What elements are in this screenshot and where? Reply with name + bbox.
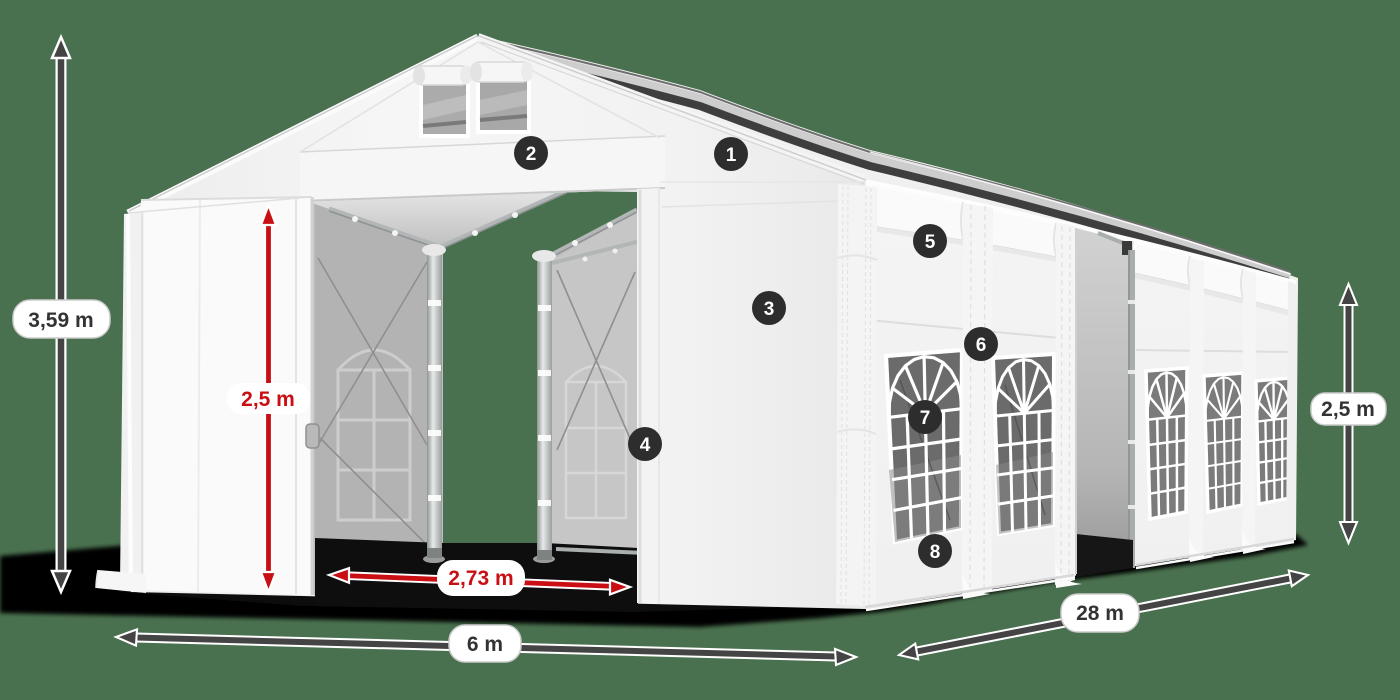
- svg-text:5: 5: [925, 232, 936, 253]
- svg-text:3: 3: [764, 299, 775, 320]
- svg-text:1: 1: [726, 145, 737, 166]
- svg-text:6: 6: [976, 335, 987, 356]
- svg-text:4: 4: [640, 435, 651, 456]
- svg-text:2,5 m: 2,5 m: [1321, 398, 1375, 421]
- svg-text:3,59 m: 3,59 m: [28, 309, 93, 332]
- svg-text:2,5 m: 2,5 m: [241, 388, 295, 411]
- svg-text:2: 2: [526, 144, 537, 165]
- svg-text:6 m: 6 m: [467, 633, 503, 656]
- svg-text:8: 8: [930, 542, 941, 563]
- svg-text:7: 7: [920, 408, 931, 429]
- svg-text:28 m: 28 m: [1076, 602, 1124, 625]
- svg-text:2,73 m: 2,73 m: [448, 567, 513, 590]
